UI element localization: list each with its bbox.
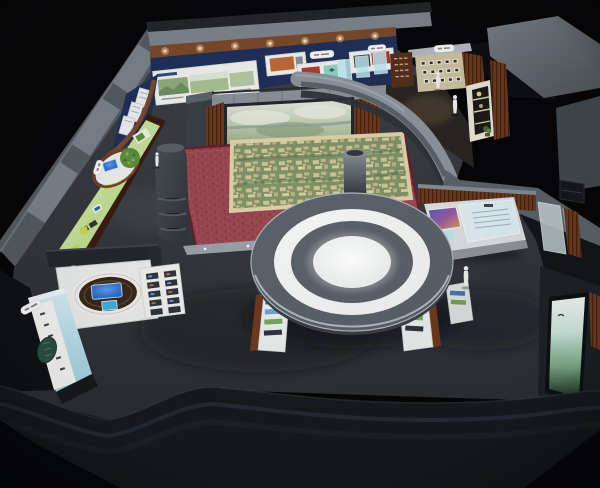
vignette-overlay <box>0 0 600 488</box>
exhibition-hall-render <box>0 0 600 488</box>
